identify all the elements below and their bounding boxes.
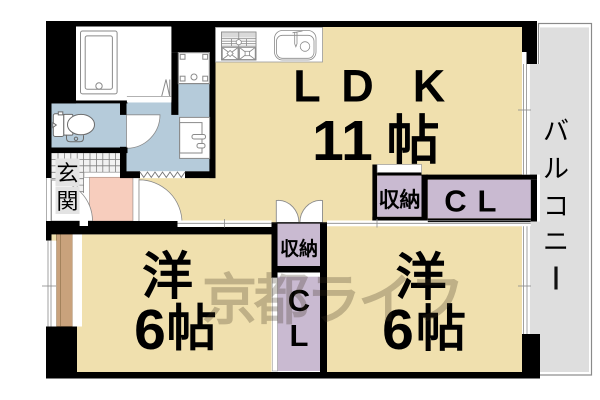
svg-text:D: D (341, 61, 374, 112)
svg-text:1: 1 (341, 109, 373, 173)
svg-text:C: C (444, 184, 466, 219)
svg-text:収納: 収納 (280, 237, 318, 260)
svg-text:関: 関 (56, 189, 78, 214)
svg-text:収納: 収納 (379, 188, 421, 212)
svg-text:玄: 玄 (56, 161, 78, 186)
svg-text:L: L (293, 61, 321, 112)
svg-text:京都ライフ: 京都ライフ (202, 269, 462, 331)
svg-text:バ: バ (543, 116, 569, 146)
svg-text:洋: 洋 (142, 248, 193, 305)
svg-text:ニ: ニ (543, 227, 569, 257)
svg-text:1: 1 (312, 109, 344, 173)
svg-text:コ: コ (543, 191, 569, 221)
svg-text:K: K (413, 61, 446, 112)
svg-text:ル: ル (543, 154, 569, 184)
svg-text:L: L (478, 184, 497, 219)
svg-text:6: 6 (134, 298, 166, 362)
svg-text:帖: 帖 (387, 112, 440, 171)
